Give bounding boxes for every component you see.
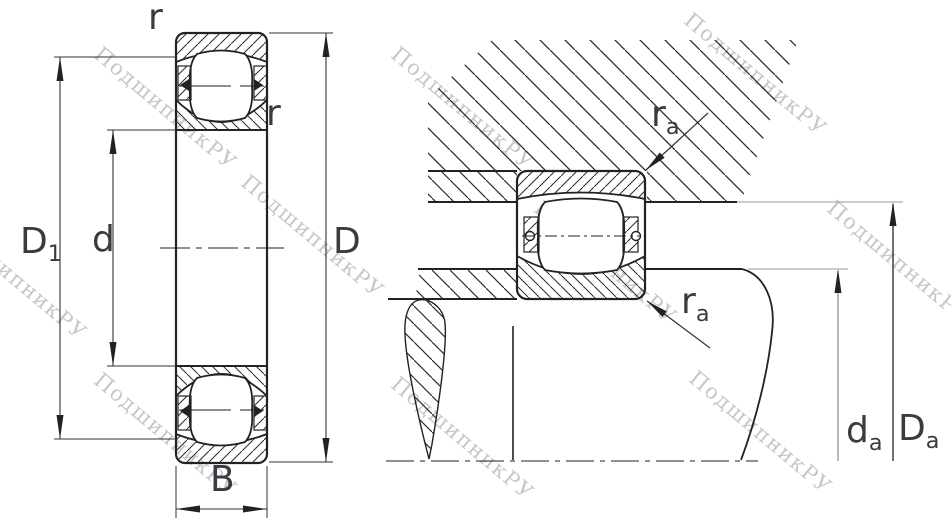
abutment-label-da: da	[846, 413, 883, 455]
fillet-label-ra-top: ra	[651, 97, 680, 139]
shaft-break-section	[405, 300, 446, 459]
shaft-shoulder	[415, 269, 517, 299]
technical-drawing-page: ПодшипникРУ ПодшипникРУ ПодшипникРУ Подш…	[0, 0, 951, 532]
radius-label-r-side: r	[266, 96, 281, 132]
dimension-label-D: D	[333, 224, 361, 260]
abutment-label-Da: Da	[898, 411, 939, 453]
dimension-label-D1: D1	[20, 224, 62, 266]
technical-drawing-svg	[0, 0, 951, 532]
shaft-contour	[741, 269, 773, 460]
mounting-section-right	[386, 40, 798, 461]
housing-shoulder	[428, 171, 517, 202]
fillet-label-ra-bottom: ra	[681, 284, 710, 326]
dimension-label-B: B	[210, 462, 235, 498]
radius-label-r-top: r	[148, 0, 163, 36]
dimension-label-d: d	[92, 222, 115, 258]
